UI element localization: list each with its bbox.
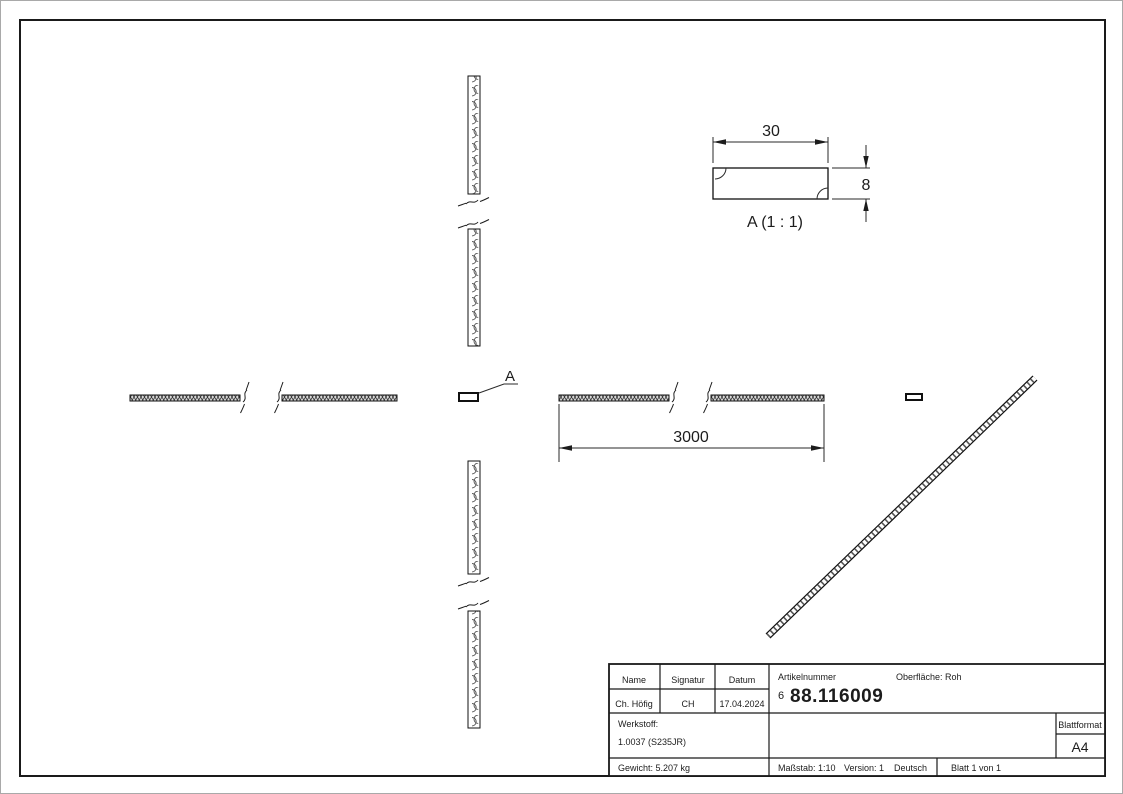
detail-height-dim-text: 8 (862, 177, 871, 194)
right-view-bar (559, 382, 824, 413)
left-view-bar (130, 382, 397, 413)
value-name: Ch. Höfig (615, 699, 653, 709)
artikelnummer-prefix: 6 (778, 690, 784, 702)
oberflaeche-value: Roh (945, 672, 962, 682)
version-value: Version: 1 (844, 763, 884, 773)
end-view (906, 394, 922, 400)
detail-marker-text: A (505, 368, 515, 385)
break-line (241, 382, 250, 413)
break-line (458, 601, 489, 610)
werkstoff-value: 1.0037 (S235JR) (618, 737, 686, 747)
header-datum: Datum (729, 675, 756, 685)
gewicht-value: Gewicht: 5.207 kg (618, 763, 690, 773)
detail-view-label: A (1 : 1) (747, 214, 803, 231)
value-datum: 17.04.2024 (719, 699, 764, 709)
massstab-value: Maßstab: 1:10 (778, 763, 836, 773)
break-line (670, 382, 679, 413)
detail-width-dim-text: 30 (762, 123, 780, 140)
drawing-canvas: 3000 A 30 8 A (1 : 1) Name (1, 1, 1123, 794)
artikelnummer-value: 88.116009 (790, 686, 883, 707)
blatt-value: Blatt 1 von 1 (951, 763, 1001, 773)
value-signatur: CH (682, 699, 695, 709)
break-line (458, 578, 489, 587)
header-signatur: Signatur (671, 675, 705, 685)
break-line (458, 198, 489, 207)
title-block: Name Signatur Datum Ch. Höfig CH 17.04.2… (609, 664, 1105, 776)
blattformat-label: Blattformat (1058, 720, 1102, 730)
length-dim-text: 3000 (673, 429, 709, 446)
header-name: Name (622, 675, 646, 685)
werkstoff-label: Werkstoff: (618, 719, 658, 729)
isometric-view-bar (768, 378, 1035, 636)
break-line (458, 220, 489, 229)
oberflaeche-label: Oberfläche: (896, 672, 943, 682)
drawing-sheet: 3000 A 30 8 A (1 : 1) Name (0, 0, 1123, 794)
blattformat-value: A4 (1071, 739, 1088, 755)
detail-view-a: 30 8 A (1 : 1) (713, 123, 871, 231)
length-dimension: 3000 (559, 404, 824, 462)
sprache-value: Deutsch (894, 763, 927, 773)
section-view: A (459, 368, 518, 401)
artikelnummer-label: Artikelnummer (778, 672, 836, 682)
